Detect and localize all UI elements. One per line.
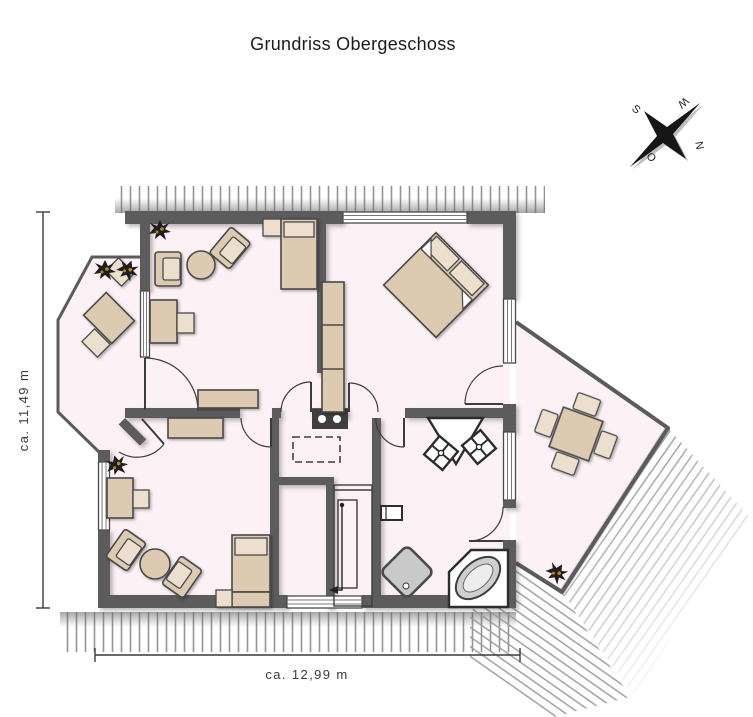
wall-middle-east [405,408,516,418]
wall-middle-post [272,408,281,418]
pillow [235,538,267,555]
compass-west-label: W [675,94,691,110]
wall-bath-west [372,418,381,608]
round-table [140,549,170,579]
compass-north-label: N [692,141,705,151]
dimension-vertical: ca. 11,49 m [16,212,50,608]
desk [150,300,177,343]
sideboard [168,418,223,438]
shower-drain [403,583,409,589]
window-bath-east [504,432,516,500]
bed-foot-bench [232,592,270,607]
desk [107,478,133,518]
wall-left-lower [98,530,110,608]
chimney-flue [333,415,341,423]
wall-right-post [503,500,516,508]
floor-plan-page: Grundriss Obergeschoss [0,0,753,717]
wall-right-upper [503,211,516,299]
compass-south-label: S [629,103,642,117]
chimney-flue [318,415,326,423]
armchair [155,252,181,286]
desk-chair [133,490,149,508]
window-bedroom-east [504,299,516,363]
page-title: Grundriss Obergeschoss [0,34,706,55]
wardrobe [322,282,344,412]
compass-rose-icon: W S O N [629,94,705,169]
floor-plan-drawing: ca. 11,49 m ca. 12,99 m W S O N [0,0,753,717]
dimension-height-label: ca. 11,49 m [16,369,31,451]
window-top [343,212,467,223]
wall-left-lower-post [98,450,110,462]
wall-left-upper [140,211,150,291]
round-table [187,251,215,279]
nightstand [263,219,281,236]
dimension-width-label: ca. 12,99 m [265,667,348,682]
wall-middle-west [125,408,240,418]
desk-chair [177,313,194,333]
radiator [381,506,402,520]
window-room-tl [141,291,150,357]
wall-stair-north [278,477,334,485]
sideboard [198,390,258,408]
pillow [284,222,314,237]
nightstand [216,590,232,607]
dimension-horizontal: ca. 12,99 m [95,648,520,682]
